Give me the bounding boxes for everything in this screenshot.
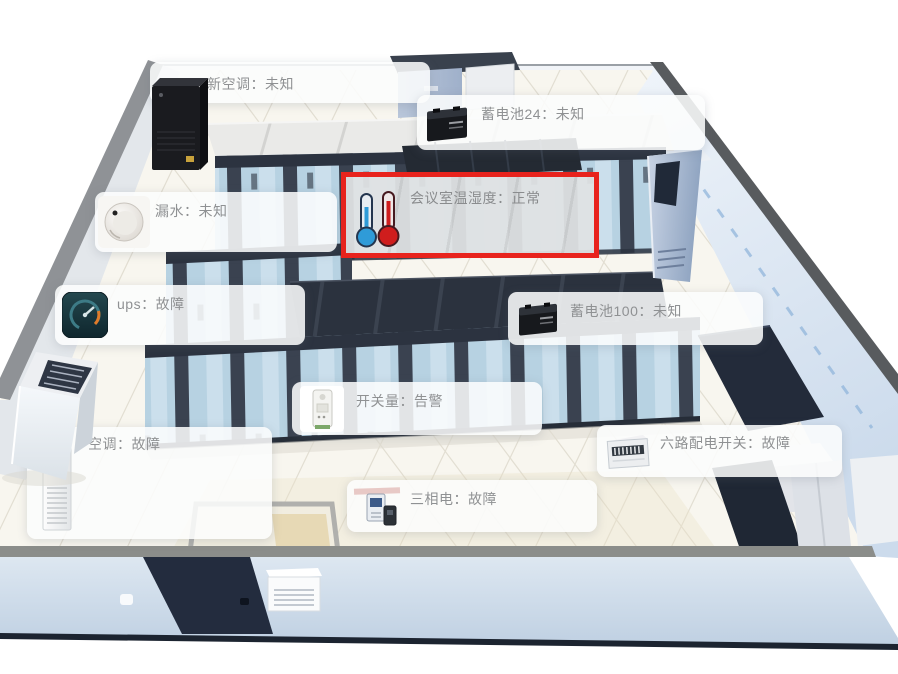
device-label-text: 三相电：故障 [410,489,497,509]
device-label-ups[interactable]: ups：故障 [55,285,305,345]
device-label-battery100[interactable]: 蓄电池100：未知 [508,292,763,345]
device-label-meeting-temp-highlighted[interactable]: 会议室温湿度：正常 [341,172,599,258]
floor-ac-icon [39,436,75,534]
device-label-text: 漏水：未知 [155,201,228,221]
device-label-text: ups：故障 [117,294,185,314]
device-label-switch[interactable]: 开关量：告警 [292,382,542,435]
device-label-text: 开关量：告警 [356,391,443,411]
device-label-ac[interactable]: 空调：故障 [27,427,272,539]
device-label-text: 蓄电池24：未知 [481,104,585,124]
battery-icon [423,102,471,144]
device-label-new-ac[interactable]: 新空调：未知 [150,62,430,103]
thermometer-icons [356,191,402,249]
distribution-box-icon [604,432,652,470]
device-label-text: 蓄电池100：未知 [570,301,682,321]
switch-sensor-icon [300,386,344,432]
device-label-battery24[interactable]: 蓄电池24：未知 [417,95,705,150]
power-meter-icon [353,484,405,530]
gauge-icon [62,292,108,338]
water-sensor-icon [98,196,150,248]
front-wall [0,546,898,650]
battery-icon [516,299,560,337]
door-handle [240,598,249,605]
device-label-text: 会议室温湿度：正常 [410,188,541,208]
wall-power-box[interactable] [266,568,322,611]
device-label-three-phase[interactable]: 三相电：故障 [347,480,597,532]
device-label-water-leak[interactable]: 漏水：未知 [95,192,337,252]
device-label-text: 空调：故障 [88,434,161,454]
device-label-text: 新空调：未知 [207,74,294,94]
device-label-six-way-switch[interactable]: 六路配电开关：故障 [597,425,842,477]
server-room-3d-view: 新空调：未知 蓄电池24：未知 会议室温湿度：正常 [0,0,898,674]
device-label-text: 六路配电开关：故障 [660,433,791,453]
